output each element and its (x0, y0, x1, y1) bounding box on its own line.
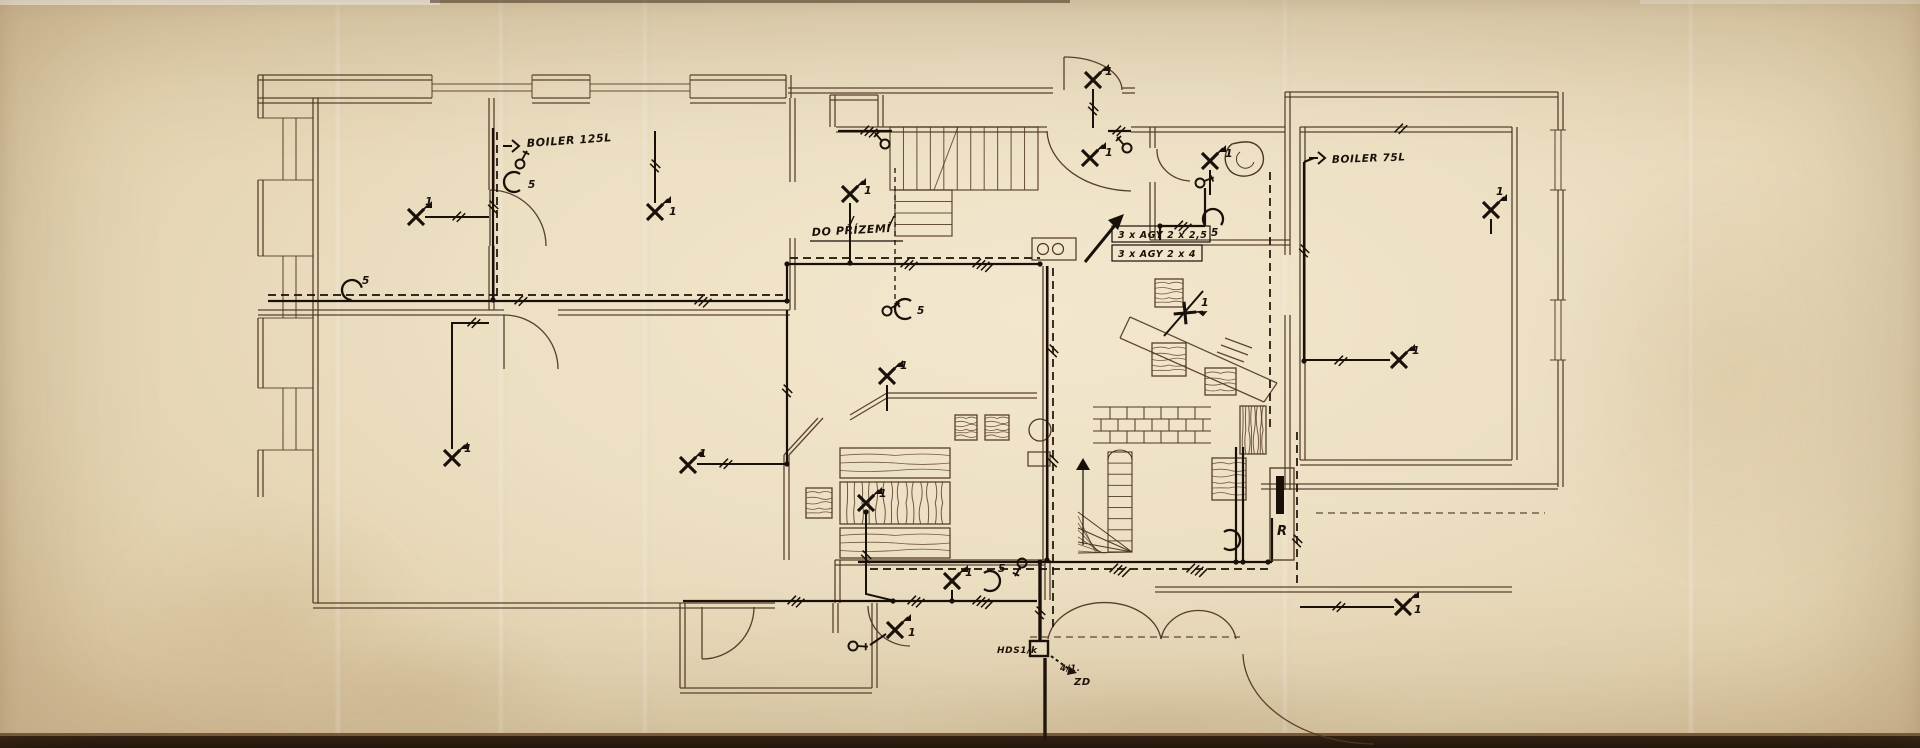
junction-dot (847, 260, 852, 265)
door-swing-arc (702, 607, 754, 659)
switch-symbol (1116, 136, 1132, 153)
junction-dot (784, 298, 789, 303)
wash-counter (1032, 238, 1076, 260)
circuit-number: 1 (879, 487, 887, 500)
circuit-number: 1 (464, 442, 472, 455)
ceiling-light-symbol: 1 (1202, 145, 1233, 169)
wood-grain (1212, 482, 1246, 483)
wood-grain (1205, 372, 1236, 373)
ceiling-light-symbol: 1 (842, 178, 872, 202)
junction-dot (1301, 358, 1306, 363)
toilet-bowl (1236, 152, 1254, 168)
hatch-ticks (695, 294, 712, 309)
wood-grain (891, 482, 892, 524)
wood-grain (1260, 406, 1261, 454)
lamp-symbol: 5 (504, 172, 536, 192)
wood-grain (840, 462, 950, 464)
wall (850, 398, 887, 420)
lamp-symbol: 5 (338, 266, 376, 305)
wood-grain (1212, 487, 1246, 488)
wood-grain (1212, 493, 1246, 495)
lamp-number: 5 (998, 563, 1006, 575)
label-hds: HDS1/k (997, 646, 1038, 656)
label-boiler-125l: BOILER 125L (526, 131, 612, 150)
wood-grain (1152, 347, 1186, 348)
wood-grain (854, 482, 855, 524)
wall-light-symbol (503, 140, 519, 152)
door-swing-arc (1157, 149, 1190, 181)
wood-grain (1212, 463, 1246, 464)
circuit-number: 1 (864, 184, 872, 197)
kitchen-counter (1221, 345, 1248, 355)
wood-grain (1155, 282, 1183, 283)
ceiling-light-symbol: 1 (1174, 296, 1210, 330)
wood-grain (941, 482, 942, 524)
wood-grain (869, 482, 870, 524)
kitchen-counter (1217, 352, 1244, 362)
wall (784, 418, 818, 455)
door-swing-arc (490, 190, 546, 246)
wood-grain (1251, 406, 1252, 454)
label-distribution-board: R (1277, 524, 1288, 539)
label-zd: ZD (1073, 677, 1091, 688)
wiring-layer (268, 128, 1314, 741)
stair-break-line (934, 127, 958, 190)
junction-dot (1233, 559, 1238, 564)
wood-grain (927, 482, 929, 524)
label-fraction: 4/1. (1059, 664, 1081, 674)
circuit-number: 1 (1201, 296, 1209, 309)
hatch-ticks (973, 257, 994, 274)
wood-grain (806, 512, 832, 513)
lamp-number: 5 (528, 179, 536, 191)
wall (789, 418, 823, 455)
hatch-ticks (1110, 562, 1131, 579)
ceiling-light-symbol: 1 (1391, 344, 1420, 368)
wood-grain (1256, 406, 1258, 454)
junction-dot (1265, 559, 1270, 564)
wood-grain (985, 417, 1009, 418)
wood-grain (906, 482, 907, 524)
wood-grain (840, 454, 950, 455)
kitchen-counter (1120, 317, 1130, 338)
door-swing-arc (1048, 603, 1161, 639)
ceiling-light-symbol: 1 (408, 195, 433, 225)
wood-grain (840, 542, 950, 544)
circuit-number: 1 (1414, 603, 1422, 616)
wood-grain (955, 429, 977, 430)
wood-grain (985, 435, 1009, 437)
wood-grain (806, 502, 832, 504)
stair-direction-arrow (1076, 458, 1090, 470)
door-swing-arc (1243, 654, 1374, 744)
hatch-ticks (788, 594, 805, 609)
junction-dot (1240, 559, 1245, 564)
hatch-ticks (1187, 562, 1208, 579)
light-cross (842, 178, 866, 202)
door-swing-arc (504, 315, 558, 369)
wood-grain (1262, 406, 1263, 454)
lamp-symbol: 5 (984, 563, 1006, 591)
wood-grain (935, 482, 936, 524)
wood-grain (955, 417, 977, 418)
junction-dot (863, 509, 868, 514)
ceiling-light-symbol: 1 (1082, 142, 1113, 166)
wood-grain (955, 424, 977, 426)
light-cross (1202, 145, 1226, 169)
junction-dot (1037, 261, 1042, 266)
circuit-number: 1 (425, 195, 433, 208)
label-cable-agy-4: 3 x AGY 2 x 4 (1118, 249, 1196, 260)
light-cross (647, 196, 671, 220)
wood-grain (955, 435, 977, 437)
floor-plan-drawing: 111111111111111155555 BOILER 125LDO PŘÍZ… (0, 0, 1920, 748)
wood-grain (862, 482, 863, 524)
ceiling-light-symbol: 1 (887, 614, 916, 639)
hatch-ticks (1395, 122, 1408, 136)
circuit-number: 1 (1412, 344, 1420, 357)
wood-grain (1253, 406, 1255, 454)
label-do-prizemi: DO PŘÍZEMÍ (811, 221, 891, 239)
switch-symbol (512, 150, 533, 170)
wood-grain (1205, 378, 1236, 380)
riser-arrowhead (1108, 214, 1124, 230)
lamp-symbol (1224, 530, 1240, 550)
wood-grain (1212, 469, 1246, 471)
wood-grain (840, 549, 950, 551)
wall-light-symbol (1309, 152, 1325, 164)
junction-dot (490, 297, 495, 302)
wall (850, 393, 887, 415)
circuit-number: 1 (699, 447, 707, 460)
ceiling-light-symbol: 1 (1085, 64, 1113, 88)
wood-grain (985, 432, 1009, 433)
label-boiler-75l: BOILER 75L (1332, 151, 1406, 166)
door-swing-arc (1064, 57, 1122, 90)
wood-grain (955, 421, 977, 423)
distribution-board-bar (1276, 476, 1284, 514)
wood-grain (806, 508, 832, 509)
kitchen-counter (1120, 338, 1264, 402)
photographed-floor-plan: 111111111111111155555 BOILER 125LDO PŘÍZ… (0, 0, 1920, 748)
wood-grain (806, 497, 832, 499)
junction-dot (784, 461, 789, 466)
wood-grain (1245, 406, 1246, 454)
wood-grain (840, 534, 950, 535)
wood-grain (1155, 301, 1183, 302)
hatch-ticks (908, 594, 925, 609)
label-cable-agy-25: 3 x AGY 2 x 2,5 (1118, 230, 1208, 241)
light-cross (1082, 142, 1106, 166)
circuit-number: 1 (900, 359, 908, 372)
furniture (840, 482, 950, 524)
lamp-number: 5 (917, 305, 925, 317)
hatch-ticks (901, 257, 918, 272)
wood-grain (985, 424, 1009, 426)
wood-grain (1242, 406, 1243, 454)
junction-dot (1037, 559, 1042, 564)
circuit-number: 1 (1225, 147, 1233, 160)
circuit-number: 1 (1105, 65, 1113, 78)
ceiling-light-symbol: 1 (680, 447, 707, 473)
wood-grain (1155, 298, 1183, 299)
circuit-number: 1 (965, 566, 973, 579)
wood-grain (1155, 292, 1183, 294)
stair-rail (890, 127, 1038, 190)
wood-grain (1205, 390, 1236, 391)
light-wire (452, 323, 489, 449)
wood-grain (912, 482, 914, 524)
wood-grain (919, 482, 922, 524)
riser-arrow (1085, 224, 1116, 262)
ceiling-light-symbol: 1 (1395, 591, 1422, 616)
wood-grain (847, 482, 848, 524)
ceiling-light-symbol: 1 (879, 359, 908, 384)
wood-grain (985, 429, 1009, 430)
wood-grain (897, 482, 898, 524)
wood-grain (1212, 475, 1246, 477)
wood-grain (840, 469, 950, 471)
wood-grain (875, 482, 877, 524)
wood-grain (985, 421, 1009, 423)
junction-dot (949, 598, 954, 603)
circuit-number: 1 (908, 626, 916, 639)
switch-symbol (847, 635, 870, 658)
circuit-number: 1 (669, 205, 677, 218)
wood-grain (806, 492, 832, 493)
lamp-number: 5 (1211, 227, 1219, 239)
ceiling-light-symbol: 1 (1483, 185, 1507, 218)
wood-grain (1249, 406, 1250, 454)
junction-dot (784, 261, 789, 266)
basin (1053, 244, 1064, 255)
ceiling-light-symbol: 1 (647, 196, 677, 220)
lamp-symbol: 5 (895, 299, 925, 319)
switch-symbol (874, 132, 890, 149)
wood-grain (955, 432, 977, 433)
junction-dot (890, 598, 895, 603)
lamp-number: 5 (362, 275, 370, 287)
ceiling-light-symbol: 1 (444, 442, 472, 466)
wood-grain (1155, 288, 1183, 290)
junction-dot (1157, 223, 1162, 228)
kitchen-counter (1225, 338, 1252, 348)
junction-dot (1044, 557, 1049, 562)
wood-grain (1152, 369, 1186, 370)
basin (1038, 244, 1049, 255)
circuit-number: 1 (1105, 146, 1113, 159)
hatch-ticks (973, 594, 994, 611)
light-wire (866, 512, 891, 600)
circuit-number: 1 (1496, 185, 1504, 198)
door-swing-arc (1161, 610, 1236, 639)
